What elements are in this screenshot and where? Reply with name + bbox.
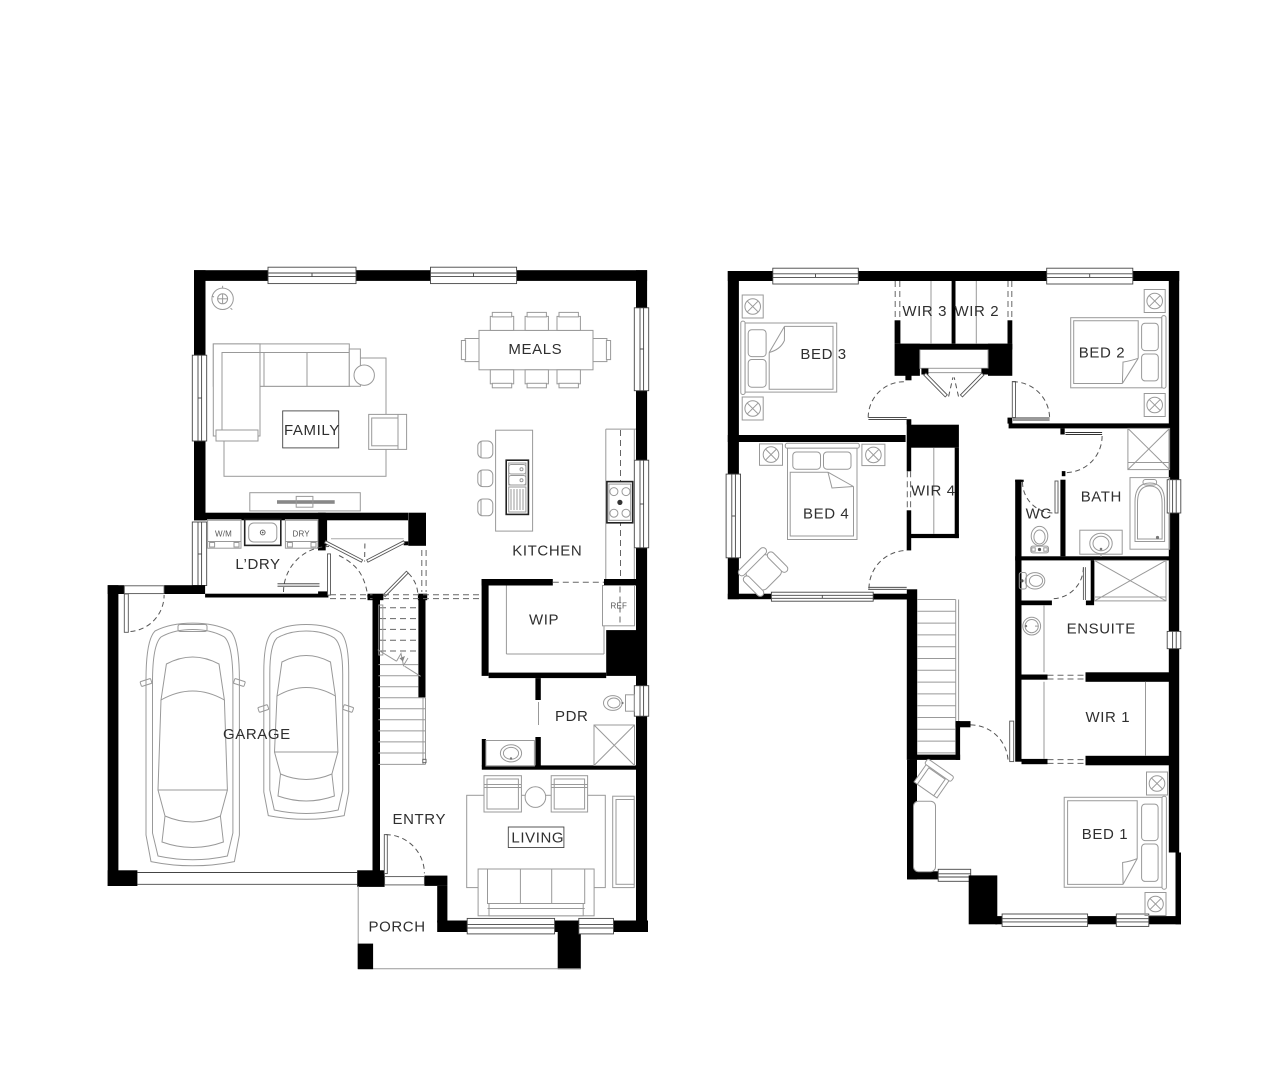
svg-text:BATH: BATH [1081,489,1122,506]
svg-text:W/M: W/M [215,530,232,539]
svg-text:ENTRY: ENTRY [393,811,447,828]
svg-text:WIR 1: WIR 1 [1086,709,1131,726]
svg-text:WIR 3: WIR 3 [902,303,947,320]
svg-text:WIR 2: WIR 2 [955,303,1000,320]
svg-text:BED 4: BED 4 [803,506,849,523]
svg-text:GARAGE: GARAGE [223,726,291,743]
svg-text:REF: REF [611,602,628,611]
svg-text:DRY: DRY [293,530,311,539]
svg-text:BED 1: BED 1 [1082,826,1128,843]
svg-text:WIP: WIP [529,611,559,628]
svg-text:FAMILY: FAMILY [284,422,340,439]
svg-text:LIVING: LIVING [511,830,564,847]
svg-text:L’DRY: L’DRY [235,556,280,573]
svg-text:KITCHEN: KITCHEN [512,543,582,560]
svg-text:WC: WC [1026,505,1052,522]
svg-text:PORCH: PORCH [369,919,426,936]
svg-text:MEALS: MEALS [508,341,562,358]
svg-text:ENSUITE: ENSUITE [1067,621,1136,638]
svg-text:BED 2: BED 2 [1079,344,1125,361]
svg-text:PDR: PDR [555,708,588,725]
svg-text:BED 3: BED 3 [800,346,846,363]
svg-text:WIR 4: WIR 4 [911,483,956,500]
